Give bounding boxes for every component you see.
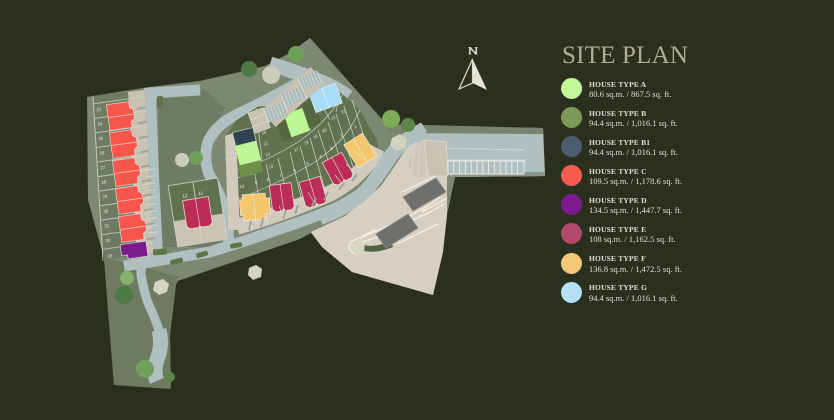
svg-text:10: 10 (239, 184, 245, 189)
